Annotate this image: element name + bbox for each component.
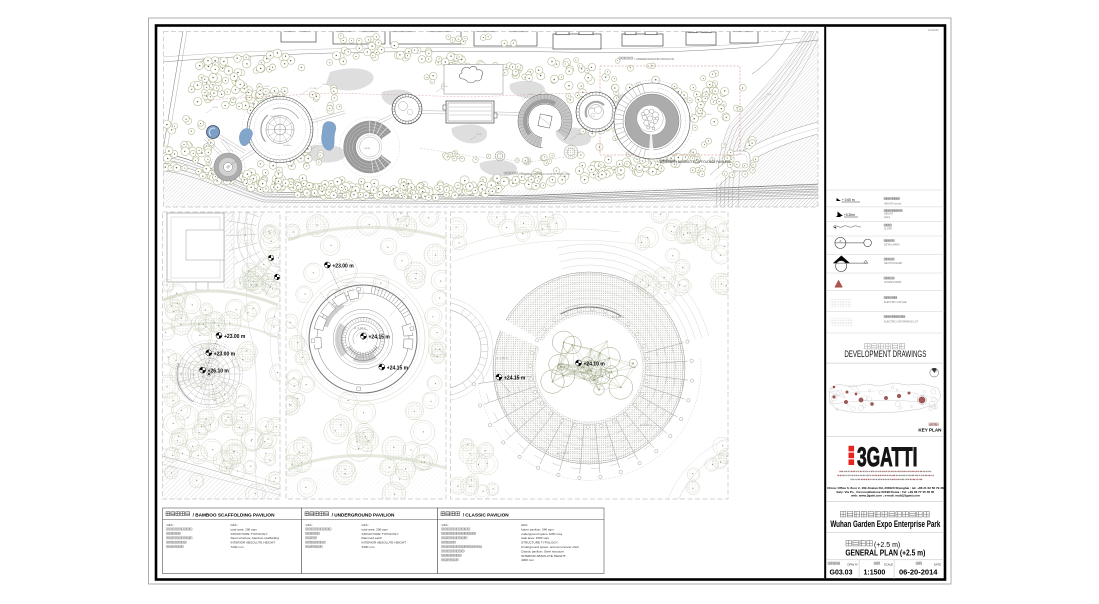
svg-text:ELECTRIC CAR PARKING LOT: ELECTRIC CAR PARKING LOT <box>884 321 919 324</box>
svg-text:STRUCTURE TYPOLOGY:: STRUCTURE TYPOLOGY: <box>231 532 269 536</box>
svg-text:+26.10 m: +26.10 m <box>208 369 230 375</box>
svg-text:STRUCTURE TYPOLOGY:: STRUCTURE TYPOLOGY: <box>521 541 559 545</box>
svg-text:G03.03: G03.03 <box>830 569 853 576</box>
svg-text:+ 0.00 m: + 0.00 m <box>842 198 855 202</box>
svg-text:INTERIOR ABSOLUTE HEIGHT:: INTERIOR ABSOLUTE HEIGHT: <box>521 554 566 558</box>
svg-text:+23.00: +23.00 <box>264 86 270 88</box>
svg-text:H: 5.45 m: H: 5.45 m <box>612 315 625 319</box>
svg-text:/ BAMBOO SCAFFOLDING PAVILION: / BAMBOO SCAFFOLDING PAVILION <box>519 172 570 176</box>
svg-text:+24.15: +24.15 <box>364 148 371 150</box>
svg-text:/ BAMBOO SCAFFOLDING PAVILION: / BAMBOO SCAFFOLDING PAVILION <box>193 513 275 518</box>
svg-text:Classic pavilion: Steel struct: Classic pavilion: Steel structure <box>521 549 564 553</box>
svg-text:total area: 1500 sqm: total area: 1500 sqm <box>521 536 550 540</box>
svg-text:KEY PLAN: KEY PLAN <box>918 428 942 433</box>
svg-text:Underground space: armed concr: Underground space: armed concrete shell <box>521 545 579 549</box>
svg-text:HEIGHT( street): HEIGHT( street) <box>884 203 901 206</box>
svg-text:/ BAMBOO SCAFFOLDING PAVILION: / BAMBOO SCAFFOLDING PAVILION <box>676 160 731 164</box>
svg-text:/ UNDERGROUND PAVILION: / UNDERGROUND PAVILION <box>332 513 395 518</box>
svg-text:STRUCTURE TYPOLOGY:: STRUCTURE TYPOLOGY: <box>362 532 400 536</box>
svg-text:4000 mm: 4000 mm <box>521 558 534 562</box>
svg-text:+23.00: +23.00 <box>626 134 632 136</box>
svg-text:total area: 200 sqm: total area: 200 sqm <box>362 527 389 531</box>
svg-text:3300 mm: 3300 mm <box>362 545 375 549</box>
svg-text:H: 5.45 m: H: 5.45 m <box>496 356 509 360</box>
svg-text:+23.00: +23.00 <box>706 114 712 116</box>
svg-text:ACCESS MARK: ACCESS MARK <box>884 281 902 284</box>
svg-text:A: A <box>839 239 841 243</box>
svg-text:Steel structure, bamboo scaffo: Steel structure, bamboo scaffolding <box>231 536 280 540</box>
svg-text:+23.00 m: +23.00 m <box>214 351 236 357</box>
svg-text:/ CLASSIC PAVILION: / CLASSIC PAVILION <box>463 513 510 518</box>
svg-text:H: 5.45 m: H: 5.45 m <box>557 451 570 455</box>
svg-text:GFA:: GFA: <box>362 523 369 527</box>
svg-text:+24.15 m: +24.15 m <box>369 335 391 341</box>
svg-text:INTERIOR ABSOLUTE HEIGHT:: INTERIOR ABSOLUTE HEIGHT: <box>362 541 407 545</box>
svg-text:GFA:: GFA: <box>231 523 238 527</box>
svg-text:INTERIOR ABSOLUTE HEIGHT:: INTERIOR ABSOLUTE HEIGHT: <box>231 541 276 545</box>
svg-text:+23.00: +23.00 <box>244 92 250 94</box>
svg-text:GFA:: GFA: <box>306 523 313 527</box>
svg-text:total area: 190 sqm: total area: 190 sqm <box>231 527 258 531</box>
svg-text:GFA:: GFA: <box>521 523 528 527</box>
svg-text:+ 5.7 0344: + 5.7 0344 <box>308 88 317 90</box>
svg-text:+24.10 m: +24.10 m <box>584 362 606 368</box>
svg-text:SCALE: SCALE <box>884 563 893 567</box>
svg-text:ELECTRIC CAR path: ELECTRIC CAR path <box>884 301 908 304</box>
svg-text:+24.15 m: +24.15 m <box>270 116 279 118</box>
svg-text:H: 3.40 m: H: 3.40 m <box>354 326 367 330</box>
svg-text:+24.15 m: +24.15 m <box>504 376 526 382</box>
svg-text:+23.00: +23.00 <box>322 84 328 86</box>
svg-text:H: 5.45 m: H: 5.45 m <box>640 423 653 427</box>
svg-text:+23.00: +23.00 <box>766 94 772 96</box>
svg-text:+23.00: +23.00 <box>576 134 582 136</box>
svg-text:Wuhan Garden Expo Enterprise P: Wuhan Garden Expo Enterprise Park <box>830 519 941 529</box>
svg-text:+23.00: +23.00 <box>212 107 218 109</box>
svg-text:+0.30m: +0.30m <box>844 213 855 217</box>
svg-text:+23.00 m: +23.00 m <box>283 145 292 147</box>
svg-text:+ 5.7 0344: + 5.7 0344 <box>270 93 279 95</box>
svg-text:GFA:: GFA: <box>442 523 449 527</box>
svg-text:underground space 1250 smq: underground space 1250 smq <box>521 532 562 536</box>
svg-text:+23.00: +23.00 <box>528 94 534 96</box>
svg-text:3GATTI: 3GATTI <box>857 442 918 472</box>
svg-text:GENERAL PLAN (+2.5 m): GENERAL PLAN (+2.5 m) <box>845 547 925 557</box>
svg-text:/ UNDERGROUND PAVILION: / UNDERGROUND PAVILION <box>634 57 674 61</box>
svg-text:web: www.3gatti.com ; e-mail:: web: www.3gatti.com ; e-mail: mail@3gatt… <box>850 494 920 498</box>
svg-text:GFA:: GFA: <box>167 523 174 527</box>
svg-text:+23.00: +23.00 <box>442 86 448 88</box>
svg-text:DETAIL MARK: DETAIL MARK <box>884 244 900 247</box>
svg-text:future pavilion: 246 sqm: future pavilion: 246 sqm <box>521 527 554 531</box>
svg-text:(plan): (plan) <box>884 216 890 219</box>
svg-text:1:1500: 1:1500 <box>864 569 886 576</box>
svg-text:DRW N°: DRW N° <box>847 563 858 567</box>
svg-text:+24.1: +24.1 <box>590 108 596 110</box>
svg-text:SECTION MARK: SECTION MARK <box>884 262 903 265</box>
svg-text:SLOPE: SLOPE <box>884 228 892 231</box>
svg-text:Rammed earth: Rammed earth <box>362 536 383 540</box>
svg-text:06-20-2014: 06-20-2014 <box>899 567 938 576</box>
svg-text:+24.15 m: +24.15 m <box>387 366 409 372</box>
svg-text:+23.00 m: +23.00 m <box>224 334 246 340</box>
svg-text:+23.00 m: +23.00 m <box>332 264 354 270</box>
svg-text:DATE: DATE <box>934 563 941 567</box>
svg-text:DEVELOPMENT DRAWINGS: DEVELOPMENT DRAWINGS <box>844 349 926 359</box>
svg-text:+23.00: +23.00 <box>476 134 482 136</box>
svg-text:7200 mm: 7200 mm <box>231 545 244 549</box>
svg-text:LEGEND: LEGEND <box>928 28 939 32</box>
